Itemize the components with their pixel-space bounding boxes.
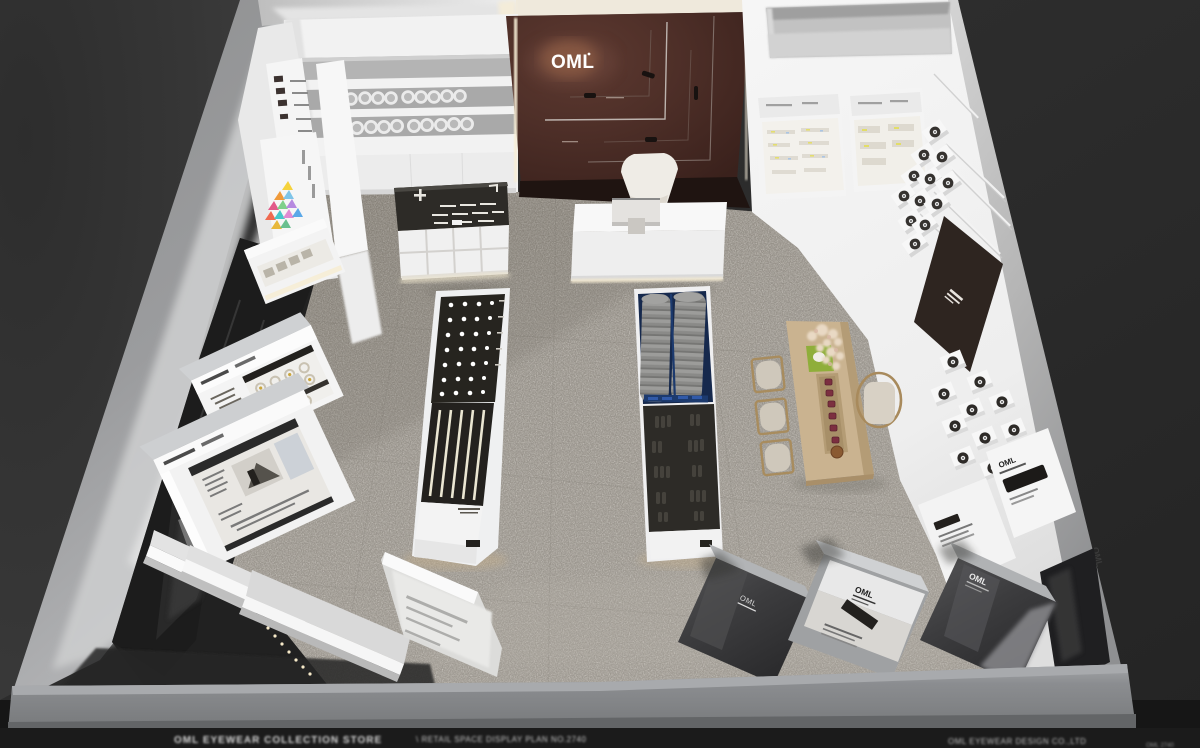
svg-text:\ RETAIL SPACE DISPLAY PLAN N: \ RETAIL SPACE DISPLAY PLAN NO.2740	[416, 735, 587, 744]
svg-text:OML 2740: OML 2740	[1146, 743, 1174, 748]
svg-text:OML EYEWEAR DESIGN CO.,LTD: OML EYEWEAR DESIGN CO.,LTD	[948, 737, 1086, 746]
svg-text:OML EYEWEAR COLLECTION STORE: OML EYEWEAR COLLECTION STORE	[174, 735, 382, 746]
svg-text:OML: OML	[551, 52, 594, 73]
